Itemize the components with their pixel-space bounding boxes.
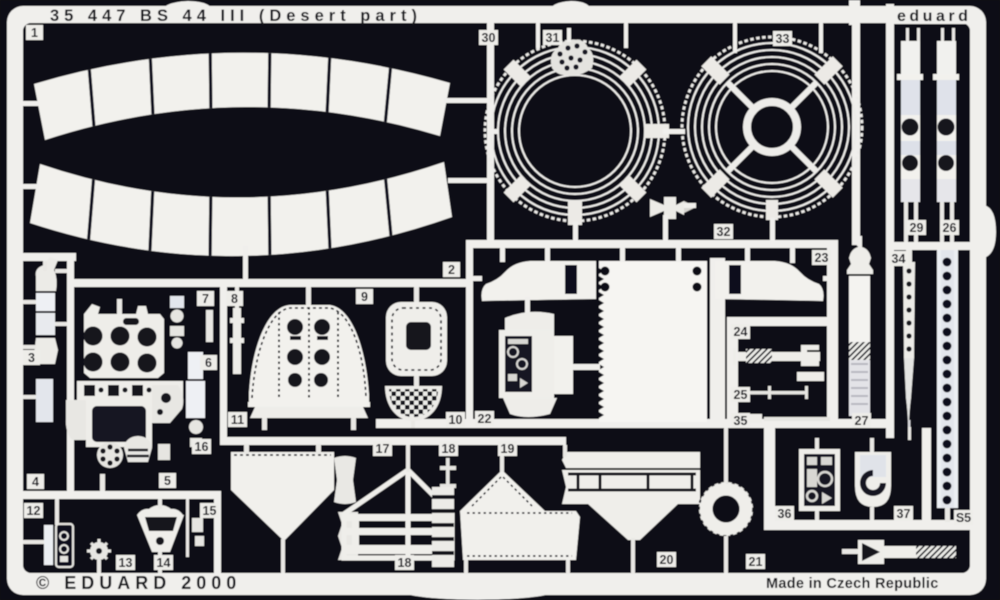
svg-text:8: 8 bbox=[231, 292, 238, 306]
svg-text:30: 30 bbox=[482, 31, 496, 45]
svg-text:18: 18 bbox=[398, 556, 412, 570]
svg-text:20: 20 bbox=[660, 553, 674, 567]
svg-text:23: 23 bbox=[815, 251, 829, 265]
svg-text:25: 25 bbox=[734, 388, 748, 402]
svg-text:5: 5 bbox=[164, 474, 171, 488]
svg-text:24: 24 bbox=[734, 325, 748, 339]
svg-text:34: 34 bbox=[892, 252, 906, 266]
svg-text:1: 1 bbox=[31, 26, 38, 40]
svg-text:11: 11 bbox=[231, 413, 244, 427]
svg-text:3: 3 bbox=[28, 351, 35, 365]
svg-text:27: 27 bbox=[855, 414, 869, 428]
svg-text:37: 37 bbox=[897, 507, 911, 521]
svg-text:15: 15 bbox=[203, 504, 217, 518]
svg-text:22: 22 bbox=[478, 412, 492, 426]
svg-text:26: 26 bbox=[943, 221, 957, 235]
svg-text:21: 21 bbox=[749, 555, 763, 569]
svg-text:S5: S5 bbox=[956, 511, 971, 525]
svg-text:9: 9 bbox=[361, 290, 368, 304]
svg-text:2: 2 bbox=[448, 263, 455, 277]
svg-text:18: 18 bbox=[442, 442, 456, 456]
svg-text:35 447 BS 44 III (Desert par: 35 447 BS 44 III (Desert part) bbox=[50, 7, 422, 25]
svg-text:17: 17 bbox=[376, 442, 390, 456]
svg-text:29: 29 bbox=[910, 221, 924, 235]
svg-text:eduard: eduard bbox=[897, 8, 971, 25]
svg-text:7: 7 bbox=[202, 292, 209, 306]
svg-text:© EDUARD 2000: © EDUARD 2000 bbox=[36, 573, 241, 593]
svg-text:32: 32 bbox=[717, 225, 731, 239]
svg-text:16: 16 bbox=[195, 440, 209, 454]
svg-text:31: 31 bbox=[546, 31, 560, 45]
svg-text:4: 4 bbox=[32, 475, 39, 489]
svg-text:13: 13 bbox=[119, 556, 133, 570]
svg-text:19: 19 bbox=[501, 442, 515, 456]
svg-text:35: 35 bbox=[734, 414, 748, 428]
svg-text:6: 6 bbox=[205, 356, 212, 370]
svg-text:36: 36 bbox=[778, 507, 792, 521]
svg-text:14: 14 bbox=[157, 556, 171, 570]
svg-text:Made in Czech Republic: Made in Czech Republic bbox=[766, 576, 939, 592]
svg-text:12: 12 bbox=[27, 504, 41, 518]
svg-text:10: 10 bbox=[449, 413, 463, 427]
svg-text:33: 33 bbox=[776, 32, 790, 46]
